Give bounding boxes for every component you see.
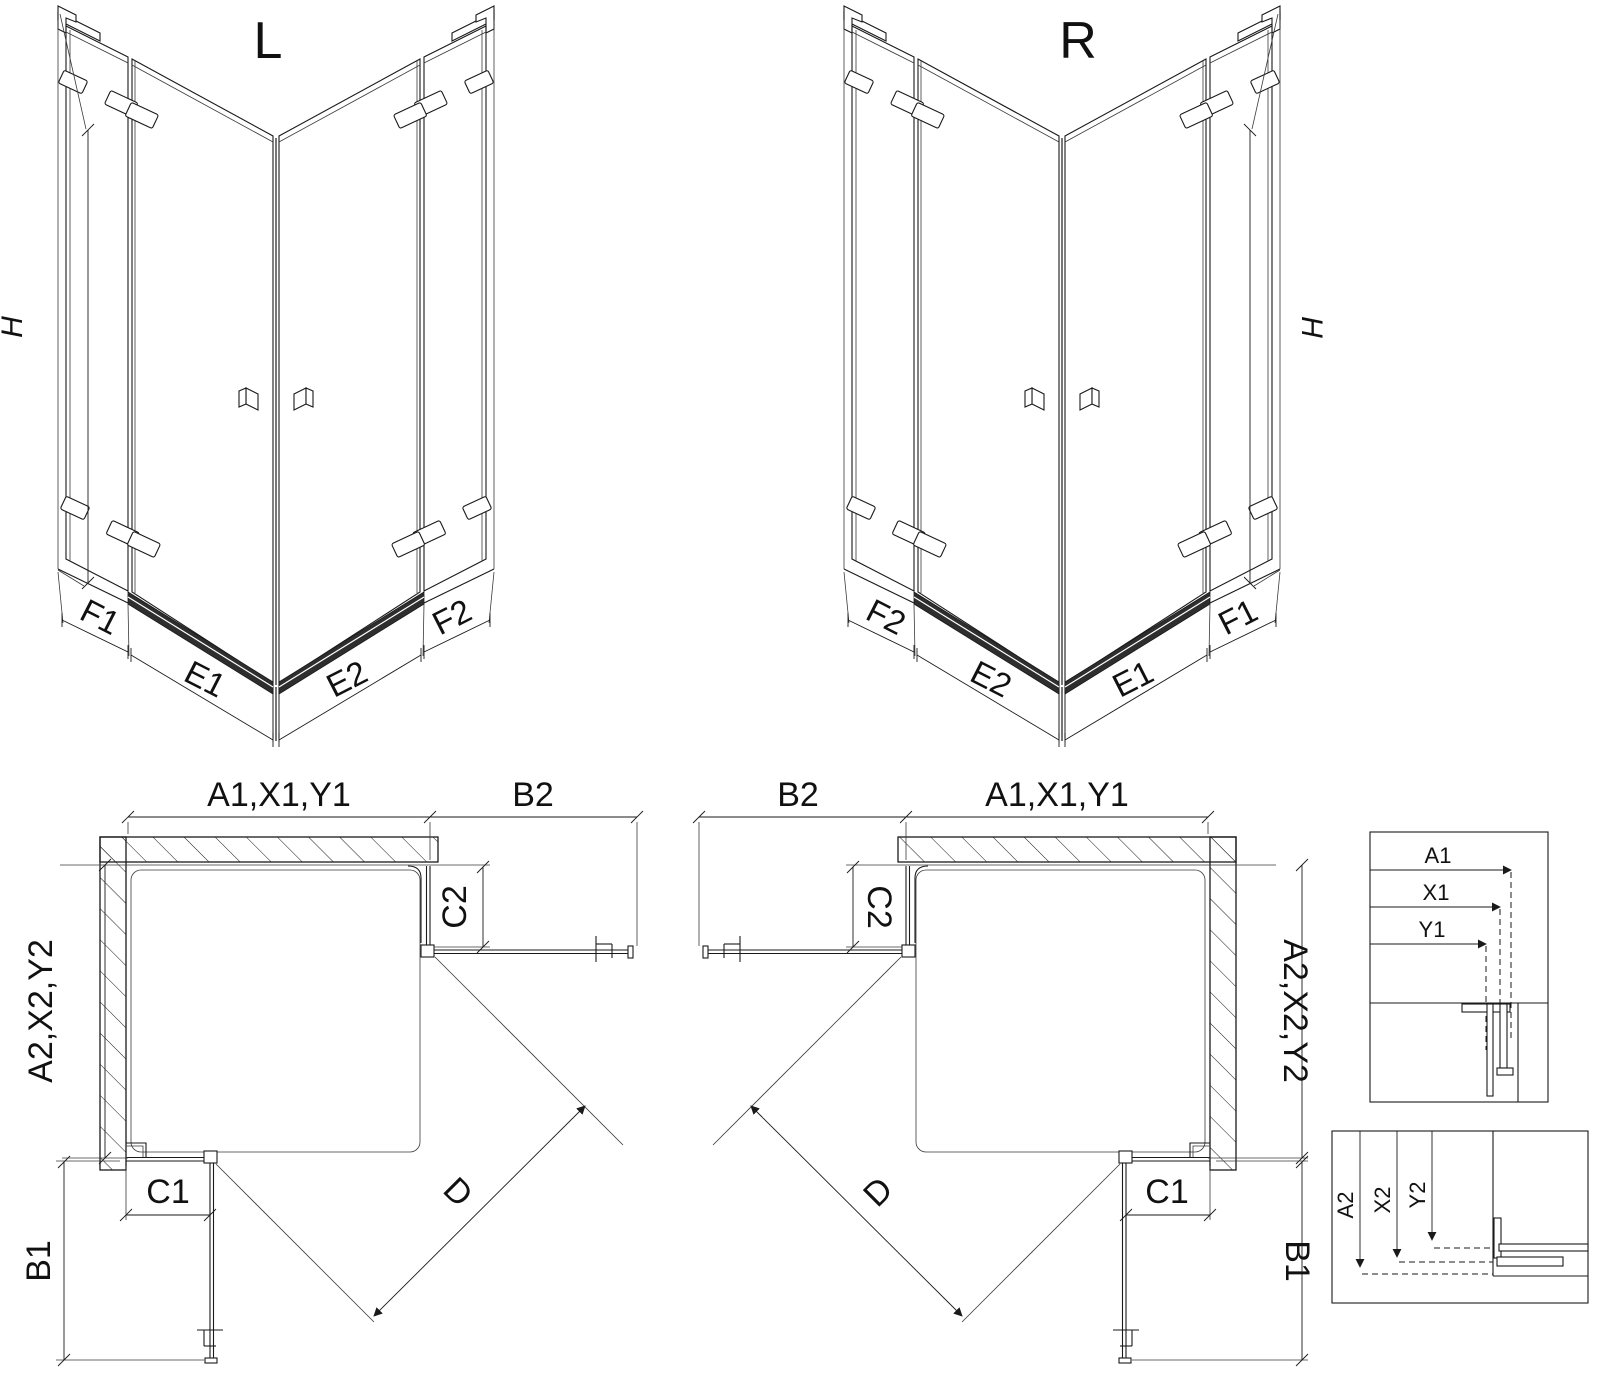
iso-view-left: L H F1 E1 E2 F2 <box>0 6 494 747</box>
plan-right-label-d: D <box>856 1170 900 1214</box>
detail-top-label-x1: X1 <box>1423 880 1450 905</box>
plan-left-label-a1x1y1: A1,X1,Y1 <box>207 776 351 814</box>
iso-right-height-label: H <box>1295 316 1328 338</box>
detail-box-top: A1 X1 Y1 <box>1370 832 1548 1102</box>
iso-right-label-f2: F2 <box>861 592 912 642</box>
plan-left-label-b1: B1 <box>20 1240 58 1282</box>
plan-right-label-c2: C2 <box>860 885 898 928</box>
wall-top-right-plan <box>898 837 1236 862</box>
wall-top <box>100 837 438 862</box>
diagram-canvas: L H F1 E1 E2 F2 R H F2 E2 E1 F1 A1,X1,Y1… <box>0 0 1600 1373</box>
detail-box-bottom: A2 X2 Y2 <box>1332 1131 1588 1303</box>
iso-view-right: R H F2 E2 E1 F1 <box>844 6 1328 747</box>
plan-left-label-b2: B2 <box>512 776 554 814</box>
plan-right-label-a1x1y1: A1,X1,Y1 <box>985 776 1129 814</box>
plan-right-label-a2x2y2: A2,X2,Y2 <box>1276 939 1314 1083</box>
wall-right <box>1210 837 1236 1170</box>
iso-left-label-f1: F1 <box>75 592 126 642</box>
shower-enclosure-technical-drawing: L H F1 E1 E2 F2 R H F2 E2 E1 F1 A1,X1,Y1… <box>0 0 1600 1373</box>
plan-right-label-c1: C1 <box>1145 1173 1188 1211</box>
iso-left-title: L <box>254 12 283 70</box>
plan-left-label-c1: C1 <box>146 1173 189 1211</box>
detail-bottom-label-y2: Y2 <box>1405 1182 1430 1209</box>
plan-view-left: A1,X1,Y1 B2 C2 A2,X2,Y2 B1 C1 D <box>20 776 643 1366</box>
plan-left-label-d: D <box>436 1170 480 1214</box>
detail-bottom-label-a2: A2 <box>1333 1192 1358 1219</box>
plan-right-label-b2: B2 <box>777 776 819 814</box>
iso-left-label-f2: F2 <box>426 592 477 642</box>
wall-left <box>100 837 126 1170</box>
plan-view-right: B2 A1,X1,Y1 C2 A2,X2,Y2 B1 C1 D <box>693 776 1316 1366</box>
detail-top-label-a1: A1 <box>1425 843 1452 868</box>
detail-top-label-y1: Y1 <box>1419 917 1446 942</box>
iso-right-title: R <box>1059 12 1097 70</box>
plan-right-label-b1: B1 <box>1278 1240 1316 1282</box>
iso-left-height-label: H <box>0 316 29 338</box>
iso-right-label-f1: F1 <box>1212 592 1263 642</box>
plan-left-label-a2x2y2: A2,X2,Y2 <box>22 939 60 1083</box>
detail-bottom-label-x2: X2 <box>1370 1187 1395 1214</box>
plan-left-label-c2: C2 <box>436 885 474 928</box>
